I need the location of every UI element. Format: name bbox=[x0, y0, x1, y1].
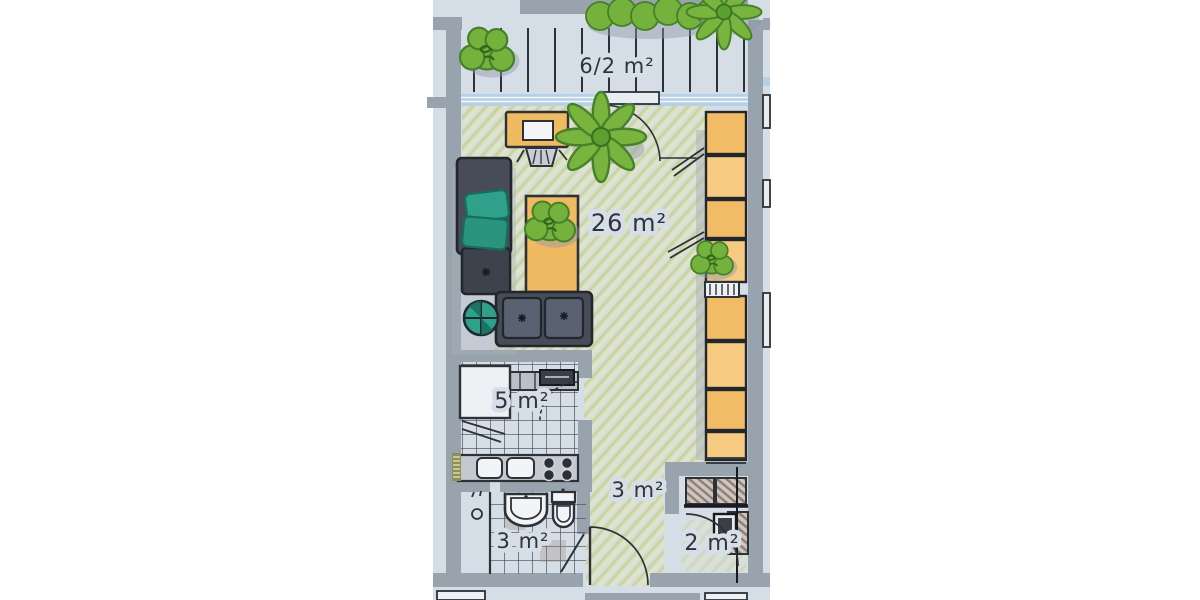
storage-area-label: 2 m² bbox=[684, 531, 739, 556]
base-cabinet-icon bbox=[458, 455, 578, 481]
kitchen-area-label: 5 m² bbox=[494, 389, 549, 414]
sink-basin-icon bbox=[507, 458, 534, 478]
kitchen: 5 m² bbox=[452, 362, 578, 481]
hallway-area-label: 3 m² bbox=[612, 478, 665, 502]
wall-storage-left bbox=[665, 462, 679, 514]
wall-storage-top bbox=[679, 462, 751, 476]
large-plant-icon bbox=[556, 92, 646, 182]
teal-cushions-icon bbox=[462, 190, 510, 250]
wall-stub-below bbox=[585, 593, 700, 600]
floor-plan-drawing: 6/2 m² bbox=[0, 0, 1200, 600]
desk-pad-icon bbox=[523, 121, 553, 140]
basket-icon bbox=[705, 282, 739, 297]
wall-stub-top-right bbox=[763, 18, 770, 30]
bathroom: 3 m² bbox=[472, 488, 586, 574]
round-pouf-icon bbox=[464, 301, 498, 335]
radiator-icon bbox=[452, 453, 461, 481]
living-room-area-label: 26 m² bbox=[591, 209, 667, 237]
wall-bottom-left bbox=[433, 573, 583, 587]
sink-basin-icon bbox=[477, 458, 502, 478]
washbasin-icon bbox=[505, 494, 547, 526]
balcony-area-label: 6/2 m² bbox=[579, 54, 654, 78]
wall-stub-left bbox=[427, 97, 447, 108]
wall-storage-right bbox=[748, 462, 763, 587]
scanned-floor-plan-page: 6/2 m² bbox=[0, 0, 1200, 600]
toilet-icon bbox=[552, 488, 575, 527]
wall-right bbox=[748, 20, 763, 500]
neighbor-window-fragment bbox=[763, 77, 770, 86]
wall-kitchen-right-upper bbox=[578, 350, 592, 378]
bathroom-area-label: 3 m² bbox=[497, 529, 550, 553]
